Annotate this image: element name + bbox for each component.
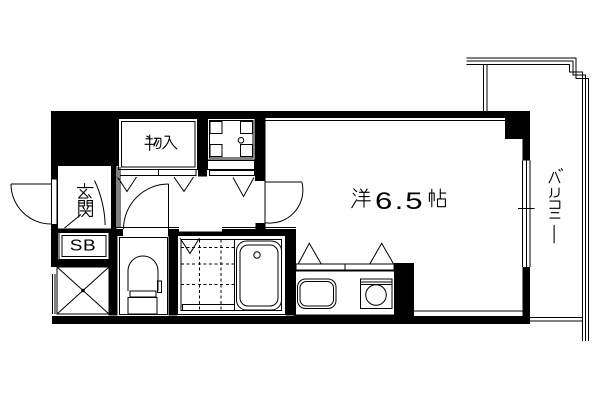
svg-text:SB: SB bbox=[70, 236, 96, 254]
svg-text:5: 5 bbox=[405, 187, 422, 214]
svg-text:.: . bbox=[395, 187, 404, 214]
svg-text:6: 6 bbox=[375, 187, 392, 214]
